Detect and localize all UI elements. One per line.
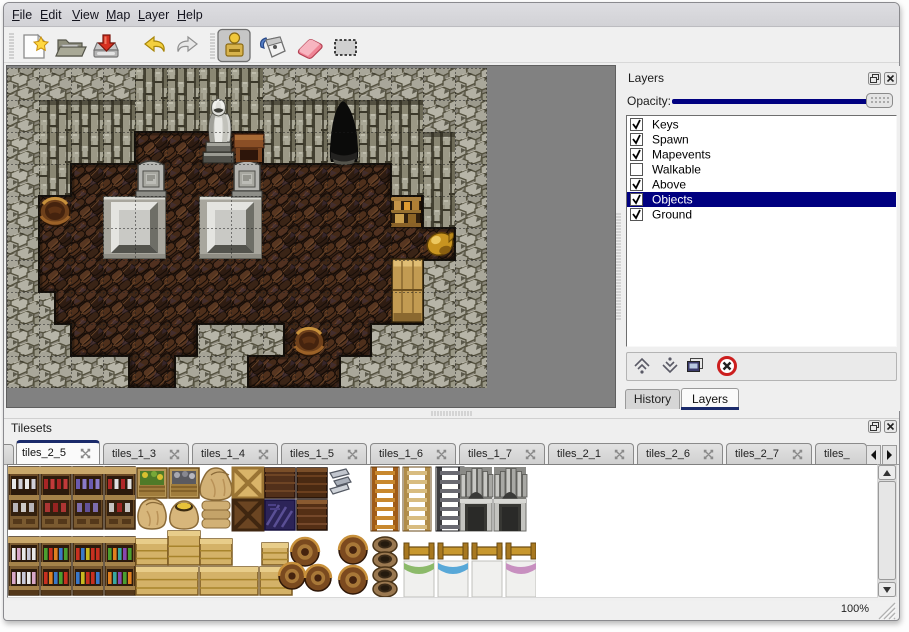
svg-text:Ground: Ground <box>652 208 692 222</box>
svg-text:Mapevents: Mapevents <box>652 148 711 162</box>
svg-text:Objects: Objects <box>652 193 693 207</box>
svg-text:Keys: Keys <box>652 118 679 132</box>
svg-text:Walkable: Walkable <box>652 163 701 177</box>
svg-text:Above: Above <box>652 178 686 192</box>
svg-text:Spawn: Spawn <box>652 133 689 147</box>
